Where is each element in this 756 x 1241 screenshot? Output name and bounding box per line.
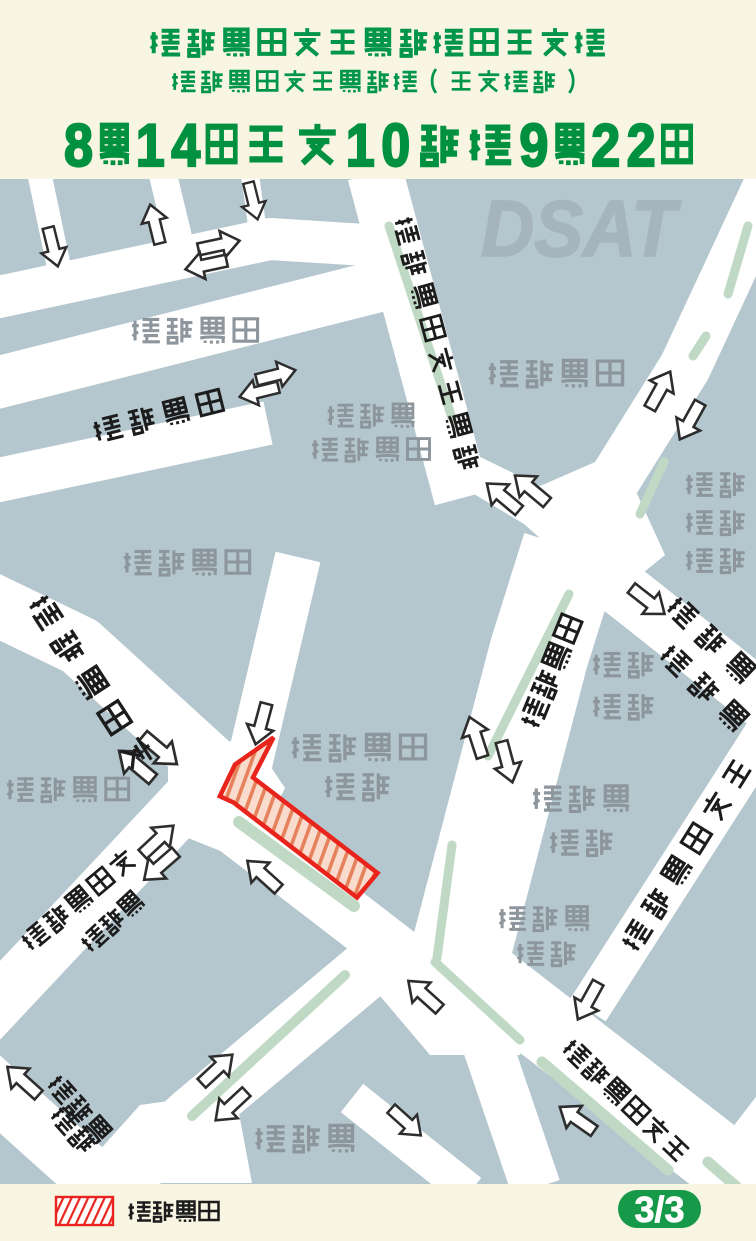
svg-text:4: 4: [171, 112, 201, 179]
svg-text:1: 1: [136, 112, 165, 179]
svg-text:1: 1: [346, 112, 375, 179]
svg-text:2: 2: [591, 112, 620, 179]
svg-text:3/3: 3/3: [634, 1189, 684, 1230]
svg-text:2: 2: [627, 112, 656, 179]
svg-text:9: 9: [519, 112, 548, 179]
svg-text:0: 0: [381, 112, 410, 179]
svg-text:DSAT: DSAT: [481, 184, 682, 273]
svg-text:8: 8: [64, 112, 93, 179]
